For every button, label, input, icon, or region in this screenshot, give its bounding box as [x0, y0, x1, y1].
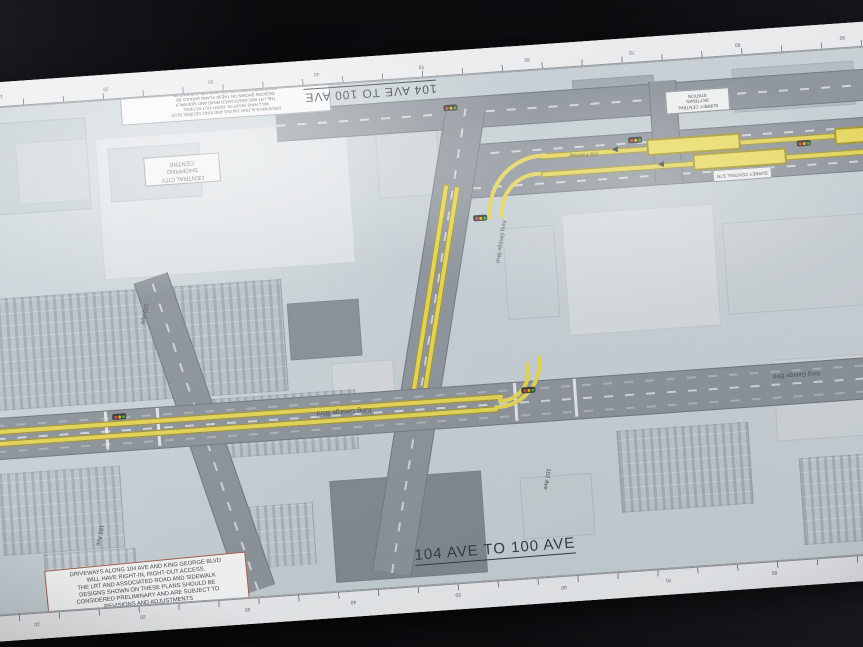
central-city-label: CENTRAL CITYSHOPPINGCENTRE [143, 153, 221, 187]
direction-arrow-icon [658, 161, 664, 167]
traffic-signal-icon [797, 140, 811, 147]
parking-lot [616, 422, 753, 513]
building-block [15, 138, 91, 205]
parking-lot [799, 450, 863, 545]
building-block [561, 204, 721, 336]
building-block [722, 213, 863, 315]
parking-lot [0, 466, 125, 556]
traffic-signal-icon [628, 136, 642, 143]
building-block [519, 473, 595, 540]
direction-arrow-icon [612, 146, 618, 152]
surrey-central-station-label: SURREY CENTRALSKYTRAINSTATION [665, 87, 730, 114]
photo-of-plan-on-table: 102030405060708090 [0, 0, 863, 647]
traffic-signal-icon [112, 413, 126, 420]
building-block [502, 225, 560, 320]
building-block [287, 299, 363, 361]
plan-sheet: 102030405060708090 [0, 19, 863, 643]
traffic-signal-icon [473, 214, 487, 221]
traffic-signal-icon [443, 104, 457, 111]
map-area: King George Blvd King George Blvd King G… [0, 45, 863, 617]
traffic-signal-icon [521, 387, 535, 394]
